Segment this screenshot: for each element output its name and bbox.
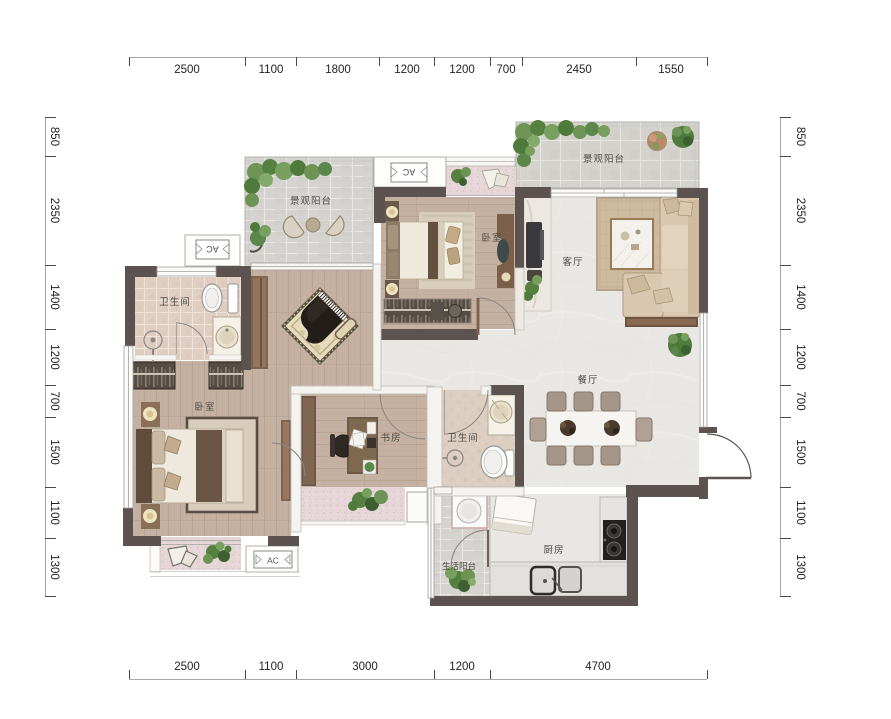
svg-text:700: 700 <box>496 64 515 76</box>
svg-text:1200: 1200 <box>449 64 475 76</box>
svg-text:景观阳台: 景观阳台 <box>583 153 625 165</box>
svg-text:厨房: 厨房 <box>543 544 564 556</box>
svg-text:生活阳台: 生活阳台 <box>442 561 476 571</box>
svg-text:景观阳台: 景观阳台 <box>290 195 332 207</box>
svg-text:AC: AC <box>402 167 415 177</box>
svg-text:1100: 1100 <box>259 64 284 76</box>
svg-text:850: 850 <box>48 127 60 146</box>
svg-text:AC: AC <box>206 244 219 254</box>
svg-text:1200: 1200 <box>449 661 475 673</box>
svg-text:2350: 2350 <box>48 198 60 224</box>
svg-text:1100: 1100 <box>794 500 806 525</box>
svg-text:1200: 1200 <box>394 64 420 76</box>
svg-text:1100: 1100 <box>48 500 60 525</box>
svg-text:书房: 书房 <box>380 432 401 444</box>
svg-text:1300: 1300 <box>48 554 60 580</box>
svg-text:700: 700 <box>48 391 60 410</box>
svg-text:卧室: 卧室 <box>481 232 502 244</box>
svg-text:2450: 2450 <box>566 64 592 76</box>
svg-text:2500: 2500 <box>174 64 200 76</box>
svg-text:2350: 2350 <box>794 198 806 224</box>
svg-text:1550: 1550 <box>658 64 684 76</box>
svg-text:卧室: 卧室 <box>194 401 215 413</box>
svg-text:卫生间: 卫生间 <box>447 432 479 444</box>
svg-text:1200: 1200 <box>48 344 60 370</box>
svg-text:850: 850 <box>794 127 806 146</box>
svg-text:700: 700 <box>794 391 806 410</box>
svg-text:1400: 1400 <box>794 284 806 310</box>
svg-text:卫生间: 卫生间 <box>159 296 191 308</box>
svg-text:1400: 1400 <box>48 284 60 310</box>
svg-text:1800: 1800 <box>325 64 351 76</box>
svg-text:AC: AC <box>267 556 279 566</box>
svg-text:客厅: 客厅 <box>562 256 583 268</box>
svg-text:餐厅: 餐厅 <box>577 374 598 386</box>
svg-text:2500: 2500 <box>174 661 200 673</box>
svg-text:1300: 1300 <box>794 554 806 580</box>
svg-text:4700: 4700 <box>585 661 611 673</box>
svg-text:1100: 1100 <box>259 661 284 673</box>
svg-text:1200: 1200 <box>794 344 806 370</box>
svg-text:1500: 1500 <box>48 439 60 465</box>
svg-text:1500: 1500 <box>794 439 806 465</box>
svg-text:3000: 3000 <box>352 661 378 673</box>
